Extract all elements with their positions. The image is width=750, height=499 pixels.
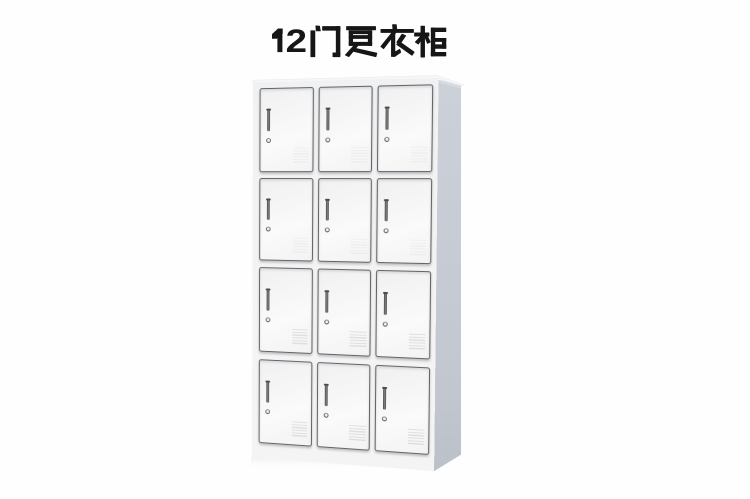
svg-text:2: 2 (286, 23, 307, 59)
